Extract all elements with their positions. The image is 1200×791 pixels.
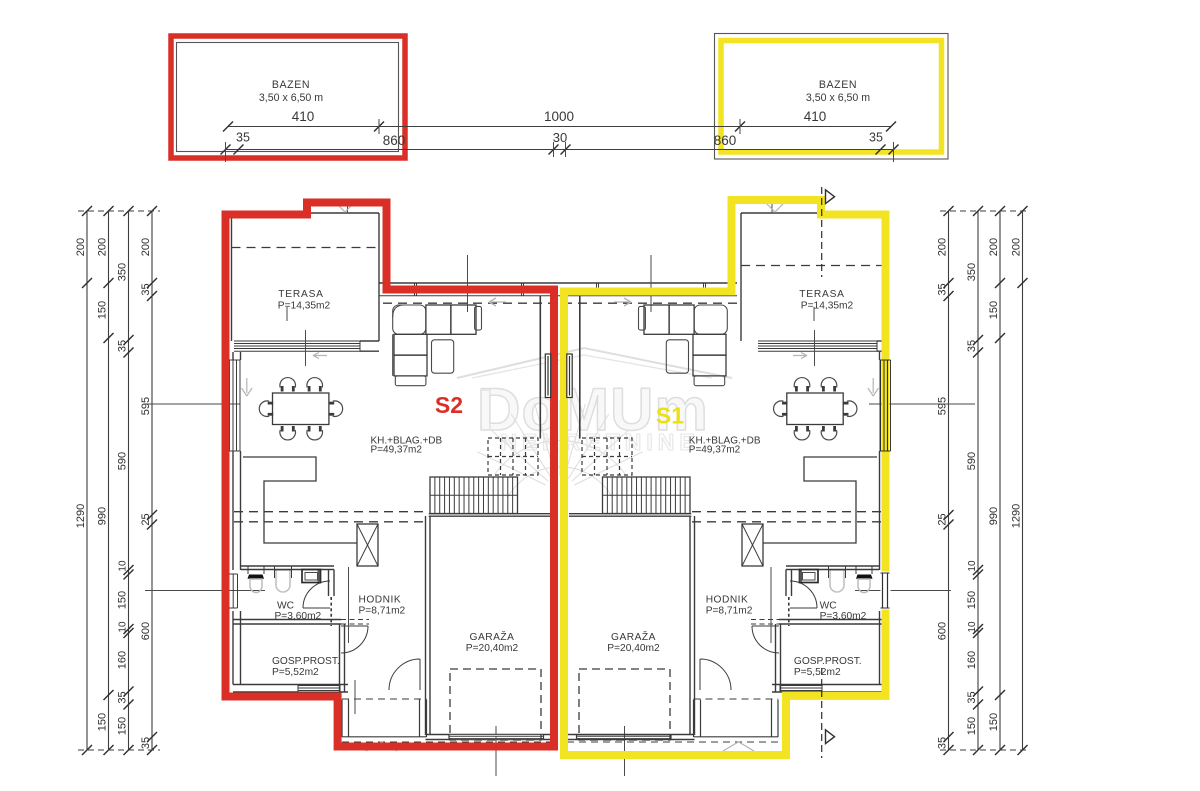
svg-text:P=49,37m2: P=49,37m2 [371,445,423,456]
svg-text:410: 410 [804,109,827,124]
svg-text:35: 35 [116,691,128,703]
svg-text:410: 410 [292,109,315,124]
svg-text:600: 600 [936,622,948,640]
svg-text:200: 200 [1010,238,1022,256]
svg-text:150: 150 [966,717,978,735]
svg-text:200: 200 [96,238,108,256]
svg-text:200: 200 [988,238,1000,256]
svg-text:160: 160 [116,651,128,669]
svg-text:595: 595 [140,397,152,415]
svg-text:10: 10 [117,560,128,572]
svg-text:25: 25 [936,513,948,525]
svg-text:10: 10 [967,560,978,572]
svg-text:WC: WC [277,601,294,612]
svg-text:35: 35 [236,131,250,145]
svg-text:35: 35 [869,131,883,145]
svg-text:P=14,35m2: P=14,35m2 [278,301,331,312]
svg-text:350: 350 [966,263,978,281]
svg-text:860: 860 [714,133,737,148]
svg-text:595: 595 [936,397,948,415]
svg-text:P=20,40m2: P=20,40m2 [607,643,660,654]
svg-text:200: 200 [140,238,152,256]
svg-text:P=20,40m2: P=20,40m2 [466,643,519,654]
svg-text:BAZEN: BAZEN [819,79,857,91]
svg-text:GOSP.PROST.: GOSP.PROST. [272,656,340,667]
svg-text:P=5,52m2: P=5,52m2 [794,667,841,678]
svg-text:10: 10 [117,621,128,633]
svg-text:990: 990 [988,507,1000,525]
svg-text:1290: 1290 [75,504,87,528]
svg-text:BAZEN: BAZEN [272,79,310,91]
svg-text:35: 35 [140,737,152,749]
svg-text:GARAŽA: GARAŽA [470,630,515,643]
svg-text:HODNIK: HODNIK [706,595,749,606]
svg-text:35: 35 [116,340,128,352]
svg-text:P=8,71m2: P=8,71m2 [359,606,406,617]
svg-text:TERASA: TERASA [278,289,324,300]
svg-text:TERASA: TERASA [799,289,845,300]
svg-text:3,50 x 6,50 m: 3,50 x 6,50 m [806,92,870,104]
svg-text:200: 200 [936,238,948,256]
svg-text:1000: 1000 [544,109,574,124]
svg-text:1290: 1290 [1010,504,1022,528]
svg-text:35: 35 [936,283,948,295]
svg-text:990: 990 [96,507,108,525]
svg-text:35: 35 [140,283,152,295]
svg-text:860: 860 [383,133,406,148]
svg-text:S2: S2 [435,392,463,418]
svg-text:150: 150 [116,591,128,609]
svg-text:P=14,35m2: P=14,35m2 [801,301,854,312]
svg-text:150: 150 [966,591,978,609]
svg-text:P=3,60m2: P=3,60m2 [275,611,322,622]
svg-text:200: 200 [75,238,87,256]
svg-text:P=8,71m2: P=8,71m2 [706,606,753,617]
svg-text:35: 35 [966,340,978,352]
svg-text:WC: WC [820,601,837,612]
svg-text:350: 350 [116,263,128,281]
svg-text:590: 590 [116,452,128,470]
svg-text:S1: S1 [656,403,684,429]
svg-text:P=3,60m2: P=3,60m2 [820,611,867,622]
svg-text:P=49,37m2: P=49,37m2 [689,445,741,456]
svg-text:150: 150 [96,713,108,731]
svg-text:35: 35 [966,691,978,703]
svg-text:HODNIK: HODNIK [359,595,402,606]
svg-text:600: 600 [140,622,152,640]
svg-text:25: 25 [140,513,152,525]
svg-text:35: 35 [936,737,948,749]
svg-text:3,50 x 6,50 m: 3,50 x 6,50 m [259,92,323,104]
svg-text:150: 150 [988,713,1000,731]
svg-text:590: 590 [966,452,978,470]
svg-text:P=5,52m2: P=5,52m2 [272,667,319,678]
svg-text:10: 10 [967,621,978,633]
svg-text:150: 150 [116,717,128,735]
svg-text:GOSP.PROST.: GOSP.PROST. [794,656,862,667]
svg-text:150: 150 [96,301,108,319]
svg-text:150: 150 [988,301,1000,319]
svg-text:GARAŽA: GARAŽA [611,630,656,643]
svg-text:160: 160 [966,651,978,669]
